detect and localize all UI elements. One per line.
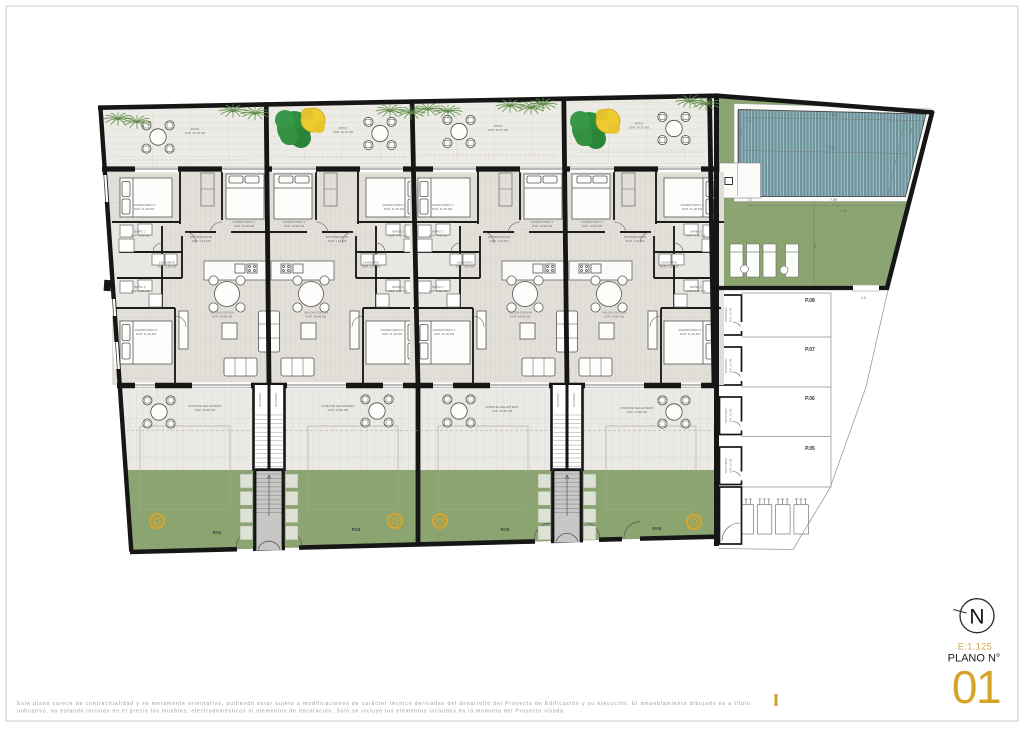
svg-text:SUP. 30,70 M2: SUP. 30,70 M2 [629,125,650,129]
svg-text:SUP. 34,85 M2: SUP. 34,85 M2 [604,314,625,318]
svg-text:SUP. 12,06 M2: SUP. 12,06 M2 [234,224,255,228]
svg-text:SUP. 30,70 M2: SUP. 30,70 M2 [488,128,509,132]
svg-text:SUP. 43,80 M2: SUP. 43,80 M2 [492,409,513,413]
svg-text:TRASTERO: TRASTERO [724,457,728,473]
svg-text:7.39: 7.39 [828,146,835,150]
svg-text:TRASTERO: TRASTERO [724,307,728,323]
svg-text:P.08: P.08 [805,298,815,304]
svg-text:SUP. 12,06 M2: SUP. 12,06 M2 [582,224,603,228]
svg-text:SUP. 3,55 M2: SUP. 3,55 M2 [131,289,150,293]
svg-text:SUP. 2,0 M2: SUP. 2,0 M2 [729,307,733,322]
svg-text:SUP. 12,06 M2: SUP. 12,06 M2 [284,224,305,228]
svg-text:P.01: P.01 [213,530,222,535]
svg-text:1.2: 1.2 [861,296,866,300]
svg-text:SUP. 1,15 M2: SUP. 1,15 M2 [328,239,347,243]
svg-text:SUP. 2,0 M2: SUP. 2,0 M2 [729,458,733,473]
svg-text:E:1.125: E:1.125 [958,642,993,652]
svg-text:SUP. 4,40 M2: SUP. 4,40 M2 [687,233,706,237]
svg-text:SUP. 11,38 M2: SUP. 11,38 M2 [432,207,453,211]
svg-text:P.06: P.06 [805,396,815,402]
svg-text:SUP. 11,26 M2: SUP. 11,26 M2 [680,332,701,336]
svg-text:1.1: 1.1 [747,119,752,123]
svg-text:TRASTERO: TRASTERO [572,393,576,407]
svg-text:SUP. 43,80 M2: SUP. 43,80 M2 [627,410,648,414]
svg-text:TRASTERO: TRASTERO [724,407,728,423]
svg-text:P.04: P.04 [653,526,662,531]
svg-text:SUP. 11,38 M2: SUP. 11,38 M2 [134,207,155,211]
svg-text:TRASTERO: TRASTERO [556,393,560,407]
svg-text:TRASTERO: TRASTERO [274,393,278,407]
svg-text:SUP. 1,15 M2: SUP. 1,15 M2 [490,239,509,243]
svg-text:7.39: 7.39 [830,198,837,202]
svg-text:SUP. 3,55 M2: SUP. 3,55 M2 [687,289,706,293]
svg-text:P.02: P.02 [352,527,361,532]
svg-text:SUP. 11,26 M2: SUP. 11,26 M2 [434,332,455,336]
svg-text:SUP. 1,50 M2: SUP. 1,50 M2 [660,264,679,268]
svg-text:SUP. 1,50 M2: SUP. 1,50 M2 [456,264,475,268]
svg-text:SUP. 1,50 M2: SUP. 1,50 M2 [362,264,381,268]
svg-text:SUP. 34,85 M2: SUP. 34,85 M2 [212,314,233,318]
svg-text:SUP. 2,0 M2: SUP. 2,0 M2 [729,358,733,373]
svg-text:SUP. 30,70 M2: SUP. 30,70 M2 [333,130,354,134]
svg-text:SUP. 3,55 M2: SUP. 3,55 M2 [429,289,448,293]
svg-text:N: N [969,606,984,629]
svg-text:SUP. 11,26 M2: SUP. 11,26 M2 [382,332,403,336]
svg-text:SUP. 3,55 M2: SUP. 3,55 M2 [389,289,408,293]
svg-text:SUP. 11,38 M2: SUP. 11,38 M2 [682,207,703,211]
svg-text:SUP. 43,80 M2: SUP. 43,80 M2 [195,408,216,412]
svg-text:SUP. 1,15 M2: SUP. 1,15 M2 [626,239,645,243]
svg-text:9.65: 9.65 [831,113,838,117]
svg-text:SUP. 11,38 M2: SUP. 11,38 M2 [384,207,405,211]
svg-text:SUP. 43,80 M2: SUP. 43,80 M2 [328,408,349,412]
svg-text:9.60: 9.60 [840,209,847,213]
svg-text:SUP. 4,40 M2: SUP. 4,40 M2 [131,233,150,237]
svg-text:2.1: 2.1 [748,198,753,202]
svg-text:4.4: 4.4 [813,243,817,248]
svg-text:01: 01 [952,661,1000,713]
svg-text:TRASTERO: TRASTERO [724,358,728,374]
svg-text:SUP. 34,85 M2: SUP. 34,85 M2 [510,314,531,318]
svg-text:SUP. 4,40 M2: SUP. 4,40 M2 [429,233,448,237]
svg-text:SUP. 2,0 M2: SUP. 2,0 M2 [729,408,733,423]
svg-text:SUP. 1,15 M2: SUP. 1,15 M2 [192,239,211,243]
svg-text:Este plano carece de contractu: Este plano carece de contractualidad y e… [17,701,750,707]
svg-text:SUP. 11,26 M2: SUP. 11,26 M2 [136,332,157,336]
svg-text:SUP. 1,50 M2: SUP. 1,50 M2 [158,264,177,268]
svg-text:SUP. 30,70 M2: SUP. 30,70 M2 [185,131,206,135]
svg-text:SUP. 4,40 M2: SUP. 4,40 M2 [389,233,408,237]
svg-text:SUP. 12,06 M2: SUP. 12,06 M2 [532,224,553,228]
svg-text:indicativo, no estando incluid: indicativo, no estando incluido en el pr… [17,709,563,715]
svg-text:TRASTERO: TRASTERO [258,393,262,407]
svg-text:P.07: P.07 [805,347,815,353]
svg-text:4.04: 4.04 [739,129,743,136]
svg-text:P.03: P.03 [501,527,510,532]
svg-text:SUP. 34,85 M2: SUP. 34,85 M2 [306,314,327,318]
svg-text:P.05: P.05 [805,446,815,452]
